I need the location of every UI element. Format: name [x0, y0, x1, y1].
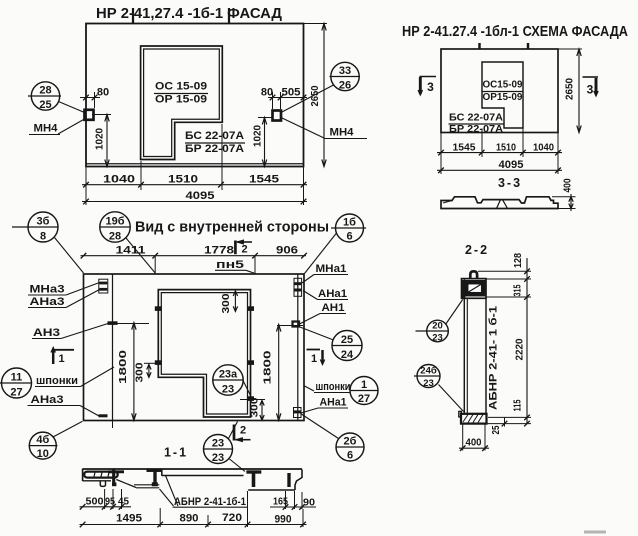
svg-text:1: 1	[58, 353, 64, 365]
svg-text:26: 26	[339, 79, 351, 91]
svg-text:300: 300	[221, 293, 232, 314]
svg-text:АН3: АН3	[33, 327, 60, 339]
svg-text:АБНР 2-41- 1 б-1: АБНР 2-41- 1 б-1	[488, 306, 500, 410]
svg-text:400: 400	[466, 437, 482, 449]
svg-text:3-3: 3-3	[498, 176, 522, 190]
svg-text:1: 1	[361, 379, 367, 391]
svg-text:28: 28	[109, 231, 121, 243]
svg-text:300: 300	[250, 397, 261, 418]
svg-text:МНа1: МНа1	[316, 263, 347, 275]
svg-text:1: 1	[311, 353, 317, 365]
svg-text:пн5: пн5	[216, 259, 244, 271]
svg-text:23: 23	[423, 378, 434, 389]
svg-text:23: 23	[432, 332, 443, 343]
svg-text:80: 80	[97, 87, 109, 99]
svg-text:ОС15-09: ОС15-09	[483, 80, 523, 91]
svg-text:23: 23	[212, 452, 224, 464]
svg-text:27: 27	[358, 393, 370, 405]
svg-text:Вид с внутренней стороны: Вид с внутренней стороны	[135, 219, 329, 236]
svg-text:БС 22-07А: БС 22-07А	[185, 130, 244, 142]
svg-text:МНа3: МНа3	[30, 284, 65, 296]
svg-text:23: 23	[222, 384, 234, 396]
svg-text:6: 6	[347, 450, 353, 462]
svg-text:2б: 2б	[344, 436, 357, 448]
svg-text:23а: 23а	[219, 369, 238, 381]
svg-text:1411: 1411	[116, 245, 146, 257]
svg-text:АНа1: АНа1	[320, 397, 347, 409]
svg-text:БР 22-07А: БР 22-07А	[185, 143, 244, 155]
svg-text:19б: 19б	[105, 216, 124, 228]
svg-text:27: 27	[10, 386, 22, 398]
svg-text:1495: 1495	[116, 513, 142, 525]
svg-text:1510: 1510	[168, 174, 198, 186]
svg-text:1545: 1545	[453, 142, 476, 154]
svg-text:45: 45	[118, 497, 129, 508]
svg-text:4095: 4095	[499, 159, 524, 171]
svg-text:8: 8	[40, 230, 46, 242]
svg-text:400: 400	[563, 178, 574, 192]
svg-text:25: 25	[491, 425, 502, 434]
svg-text:95: 95	[105, 497, 115, 508]
svg-text:1800: 1800	[117, 350, 129, 384]
svg-text:90: 90	[303, 498, 315, 509]
svg-text:ОР 15-09: ОР 15-09	[155, 94, 207, 106]
svg-text:1545: 1545	[249, 174, 279, 186]
svg-text:шпонки: шпонки	[316, 381, 351, 393]
svg-text:4б: 4б	[36, 434, 49, 446]
svg-text:БР 22-07А: БР 22-07А	[449, 123, 503, 135]
svg-text:315: 315	[513, 284, 524, 296]
svg-text:1б: 1б	[343, 217, 356, 229]
svg-text:300: 300	[134, 362, 145, 383]
svg-text:165: 165	[273, 497, 288, 508]
svg-text:25: 25	[341, 334, 353, 346]
svg-text:АН1: АН1	[322, 302, 345, 314]
svg-text:АНа1: АНа1	[318, 288, 347, 300]
svg-text:2650: 2650	[309, 85, 321, 106]
svg-text:1-1: 1-1	[164, 446, 188, 460]
svg-text:НР 2-41.27.4 -1бл-1 СХЕМА ФАСА: НР 2-41.27.4 -1бл-1 СХЕМА ФАСАДА	[402, 23, 628, 40]
svg-text:906: 906	[276, 245, 298, 257]
svg-text:3: 3	[427, 80, 434, 94]
svg-text:2: 2	[240, 425, 246, 437]
svg-text:4095: 4095	[186, 190, 215, 202]
svg-text:АБНР 2-41-1б-1: АБНР 2-41-1б-1	[174, 496, 246, 508]
svg-text:1020: 1020	[94, 128, 106, 150]
svg-text:1040: 1040	[103, 174, 135, 186]
svg-text:ОС 15-09: ОС 15-09	[155, 81, 207, 93]
svg-text:990: 990	[275, 514, 292, 526]
svg-text:11: 11	[11, 372, 23, 384]
svg-text:505: 505	[282, 87, 301, 99]
svg-text:3б: 3б	[37, 216, 50, 228]
svg-text:1040: 1040	[533, 142, 554, 154]
svg-text:23: 23	[212, 438, 224, 450]
svg-text:24: 24	[341, 349, 354, 361]
svg-text:1800: 1800	[262, 350, 274, 384]
svg-text:3: 3	[587, 83, 594, 97]
svg-text:НР 2-41,27.4 -1б-1 ФАСАД: НР 2-41,27.4 -1б-1 ФАСАД	[96, 5, 282, 22]
svg-text:20: 20	[432, 321, 443, 332]
svg-text:МН4: МН4	[330, 127, 355, 139]
svg-text:1778: 1778	[204, 245, 234, 257]
svg-text:80: 80	[261, 87, 273, 99]
svg-text:6: 6	[346, 231, 352, 243]
svg-text:2: 2	[241, 244, 247, 256]
svg-text:ОР15-09: ОР15-09	[483, 92, 523, 103]
svg-text:2220: 2220	[514, 338, 526, 360]
svg-text:шпонки: шпонки	[36, 375, 78, 387]
svg-text:АНа3: АНа3	[30, 296, 65, 308]
svg-text:500: 500	[86, 497, 104, 508]
svg-text:720: 720	[222, 512, 242, 524]
svg-text:33: 33	[339, 65, 351, 77]
svg-text:128: 128	[513, 253, 524, 268]
svg-text:1020: 1020	[252, 125, 264, 147]
svg-text:2650: 2650	[564, 78, 576, 100]
svg-text:115: 115	[513, 399, 524, 411]
svg-text:2-2: 2-2	[465, 243, 489, 257]
svg-text:10: 10	[37, 448, 49, 460]
svg-text:1510: 1510	[496, 142, 516, 154]
svg-text:БС 22-07А: БС 22-07А	[449, 112, 503, 124]
svg-text:24б: 24б	[420, 366, 437, 377]
svg-text:МН4: МН4	[34, 123, 59, 135]
svg-text:890: 890	[180, 513, 199, 525]
svg-text:АНа3: АНа3	[31, 394, 64, 406]
svg-text:28: 28	[39, 85, 51, 97]
svg-text:25: 25	[39, 99, 51, 111]
